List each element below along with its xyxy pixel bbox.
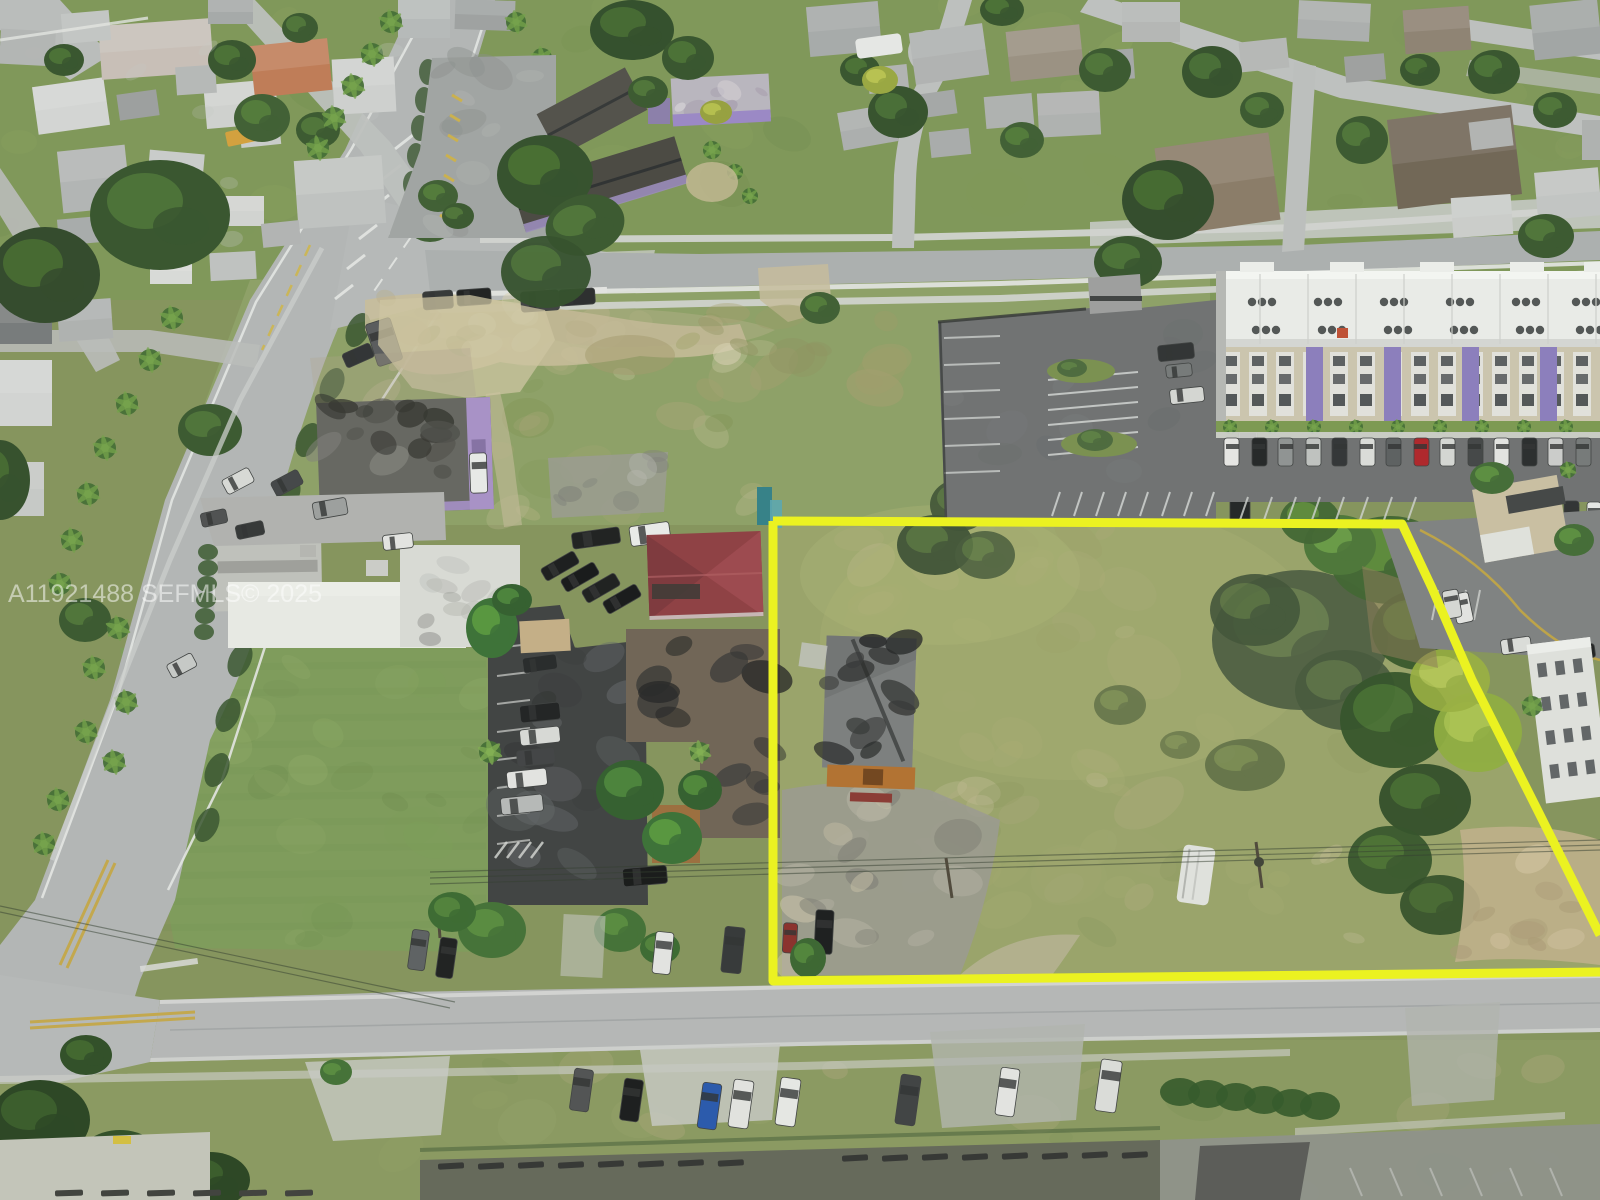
svg-text:A11921488 SEFMLS© 2025: A11921488 SEFMLS© 2025 xyxy=(8,580,322,608)
